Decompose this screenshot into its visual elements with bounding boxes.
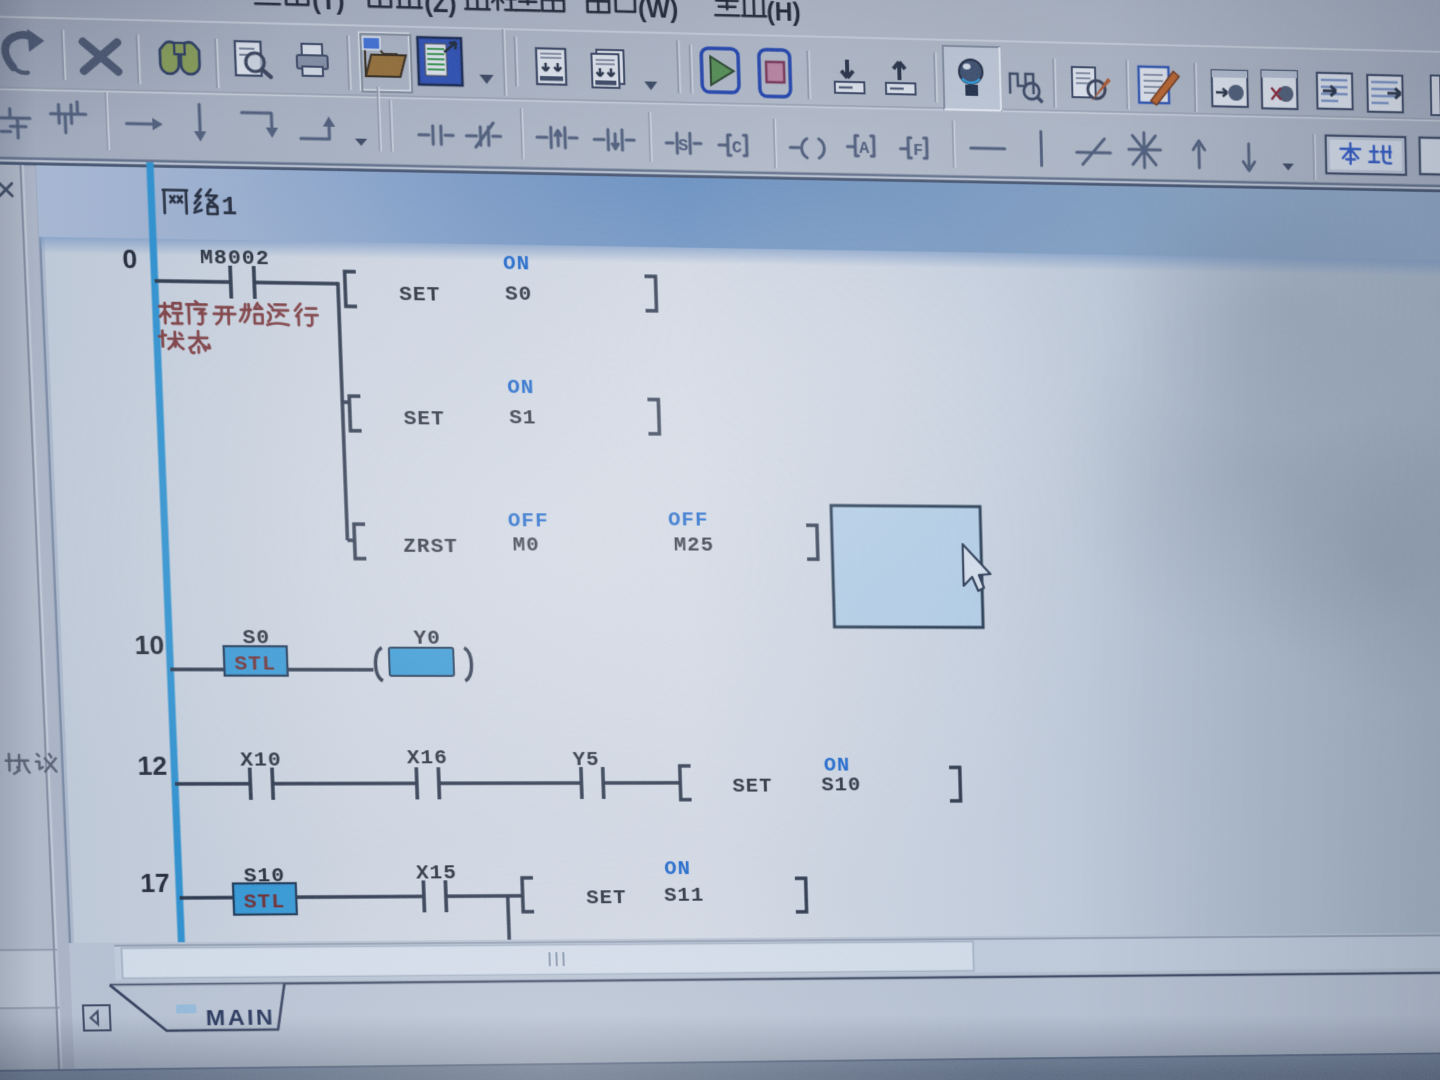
svg-text:S11: S11 — [664, 884, 705, 908]
svg-text:STL: STL — [234, 652, 276, 676]
svg-text:10: 10 — [134, 630, 165, 660]
svg-text:SET: SET — [732, 774, 773, 798]
svg-text:MAIN: MAIN — [205, 1005, 276, 1032]
svg-text:X10: X10 — [240, 748, 282, 772]
svg-text:12: 12 — [137, 751, 168, 781]
svg-text:17: 17 — [140, 868, 171, 898]
svg-text:M25: M25 — [673, 533, 714, 557]
svg-text:(Z): (Z) — [424, 0, 457, 18]
svg-text:S10: S10 — [821, 773, 861, 797]
svg-text:SET: SET — [586, 886, 627, 910]
svg-text:ON: ON — [507, 375, 535, 399]
svg-text:(T): (T) — [311, 0, 345, 16]
svg-text:STL: STL — [243, 890, 285, 914]
svg-text:ZRST: ZRST — [403, 534, 459, 558]
svg-text:ON: ON — [503, 251, 531, 276]
svg-text:F: F — [913, 142, 923, 161]
svg-text:OFF: OFF — [507, 509, 549, 533]
svg-text:M0: M0 — [512, 533, 540, 557]
svg-text:(H): (H) — [766, 0, 801, 27]
svg-text:S: S — [678, 137, 689, 157]
svg-text:ON: ON — [664, 857, 692, 881]
svg-text:S1: S1 — [509, 406, 537, 430]
svg-text:S0: S0 — [505, 282, 533, 307]
svg-text:OFF: OFF — [668, 508, 709, 532]
svg-text:1: 1 — [221, 193, 238, 223]
svg-text:Y5: Y5 — [572, 748, 600, 772]
svg-text:A: A — [859, 139, 870, 158]
svg-text:C: C — [732, 139, 743, 159]
svg-text:M8002: M8002 — [200, 245, 271, 271]
svg-text:X16: X16 — [406, 746, 448, 770]
svg-text:(W): (W) — [638, 0, 679, 24]
svg-text:X15: X15 — [416, 861, 458, 885]
svg-text:0: 0 — [122, 243, 138, 274]
svg-text:SET: SET — [399, 282, 441, 307]
svg-text:SET: SET — [403, 407, 445, 432]
